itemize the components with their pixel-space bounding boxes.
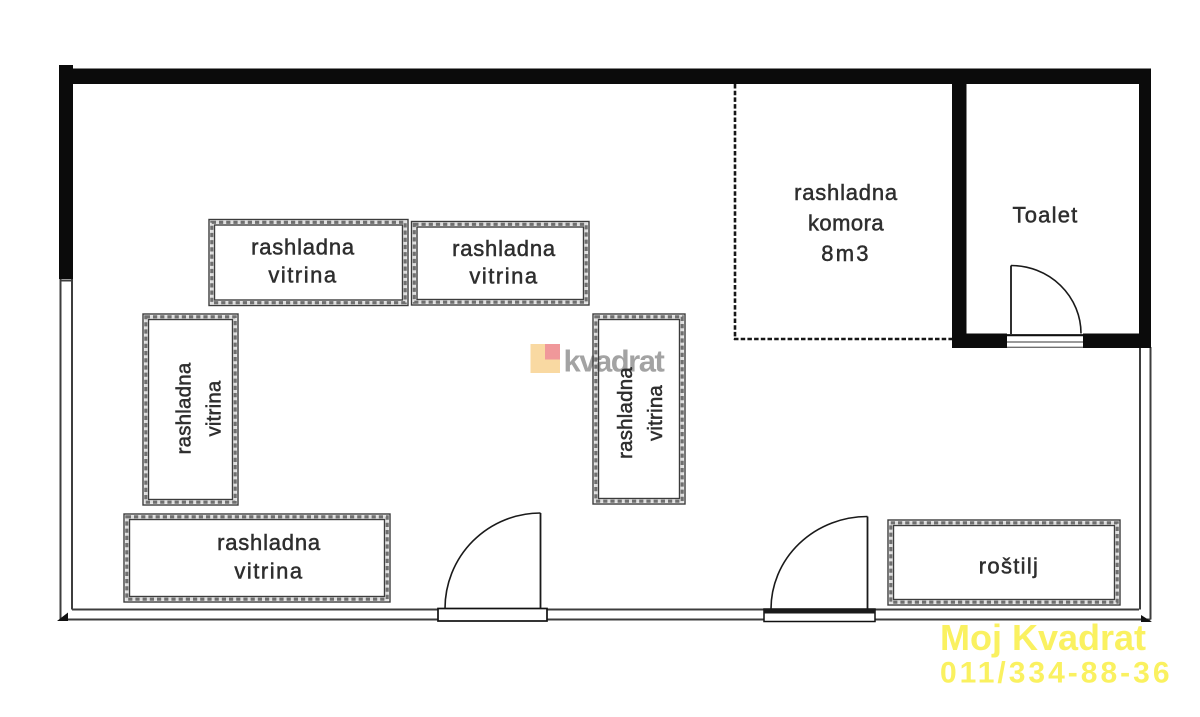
svg-text:vitrina: vitrina bbox=[644, 385, 667, 441]
svg-text:rashladna: rashladna bbox=[173, 362, 196, 454]
svg-text:Toalet: Toalet bbox=[1013, 203, 1079, 228]
svg-text:rashladna: rashladna bbox=[794, 180, 898, 205]
svg-text:011/334-88-36: 011/334-88-36 bbox=[940, 657, 1173, 690]
svg-text:rashladna: rashladna bbox=[251, 235, 355, 260]
svg-text:vitrina: vitrina bbox=[234, 559, 303, 584]
svg-text:Moj Kvadrat: Moj Kvadrat bbox=[940, 617, 1146, 658]
svg-text:roštilj: roštilj bbox=[979, 554, 1039, 579]
svg-text:rashladna: rashladna bbox=[452, 236, 556, 261]
svg-text:vitrina: vitrina bbox=[203, 380, 226, 436]
svg-text:8m3: 8m3 bbox=[821, 241, 870, 266]
svg-text:komora: komora bbox=[808, 211, 884, 236]
svg-text:vitrina: vitrina bbox=[469, 264, 538, 289]
svg-text:vitrina: vitrina bbox=[268, 263, 337, 288]
svg-text:rashladna: rashladna bbox=[614, 367, 637, 459]
svg-text:rashladna: rashladna bbox=[217, 530, 321, 555]
